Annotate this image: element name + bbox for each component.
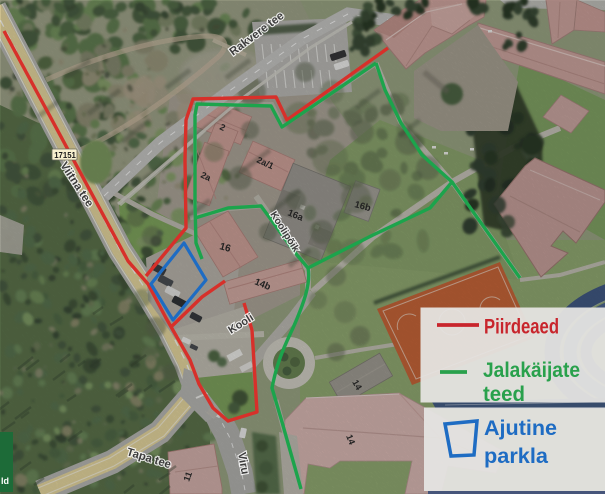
svg-text:parkla: parkla: [484, 444, 549, 468]
svg-text:Jalakäijate: Jalakäijate: [483, 358, 580, 382]
svg-text:teed: teed: [483, 382, 525, 406]
svg-text:ld: ld: [1, 476, 9, 486]
svg-text:Piirdeaed: Piirdeaed: [484, 315, 559, 339]
svg-text:17151: 17151: [54, 151, 76, 160]
svg-text:Ajutine: Ajutine: [484, 416, 557, 440]
